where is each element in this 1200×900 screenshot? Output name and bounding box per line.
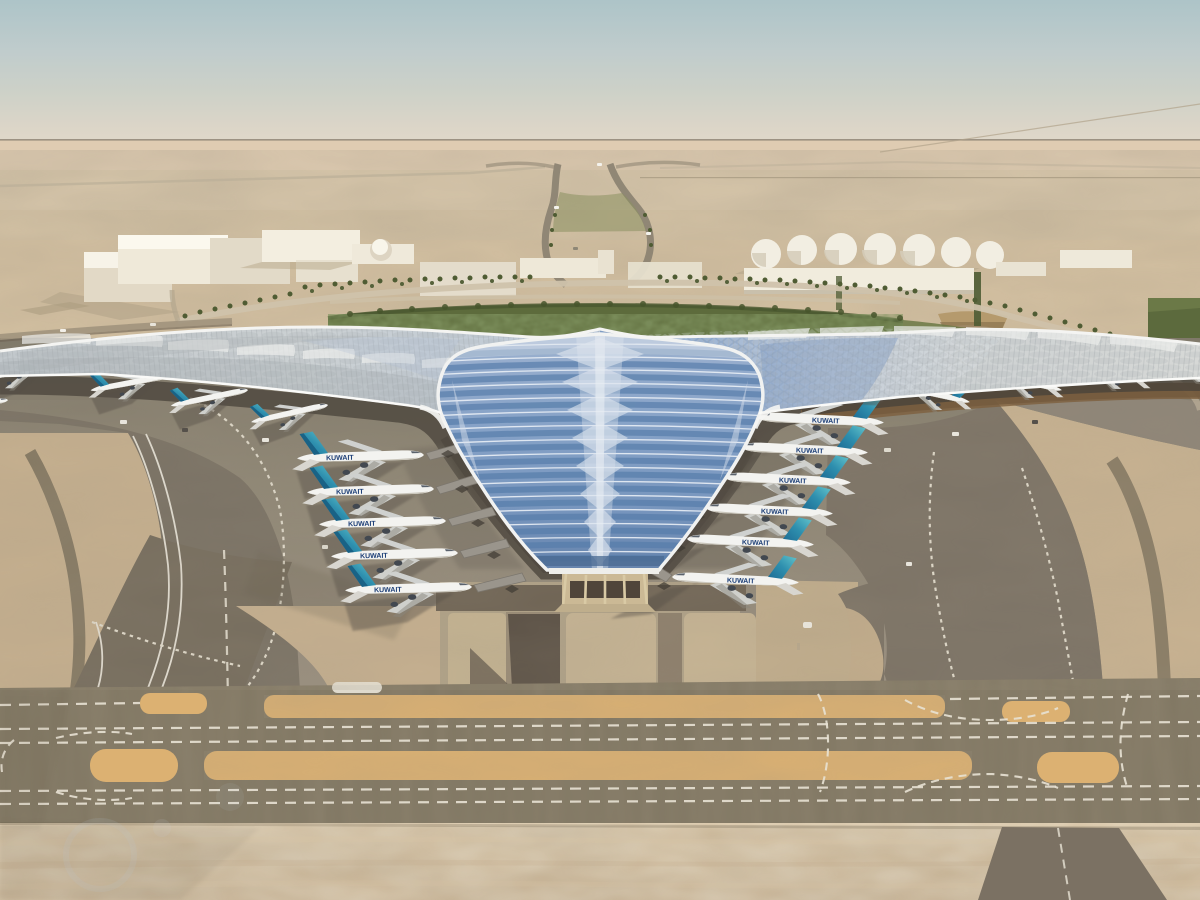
svg-text:KUWAIT: KUWAIT (336, 489, 364, 496)
svg-text:KUWAIT: KUWAIT (761, 508, 790, 516)
svg-text:KUWAIT: KUWAIT (326, 455, 354, 462)
svg-text:KUWAIT: KUWAIT (796, 447, 825, 455)
svg-text:KUWAIT: KUWAIT (374, 587, 402, 594)
svg-text:KUWAIT: KUWAIT (812, 417, 841, 425)
svg-text:KUWAIT: KUWAIT (360, 553, 388, 560)
svg-text:KUWAIT: KUWAIT (742, 539, 771, 547)
svg-text:KUWAIT: KUWAIT (727, 577, 756, 585)
svg-text:KUWAIT: KUWAIT (348, 521, 376, 528)
svg-text:KUWAIT: KUWAIT (779, 477, 808, 485)
